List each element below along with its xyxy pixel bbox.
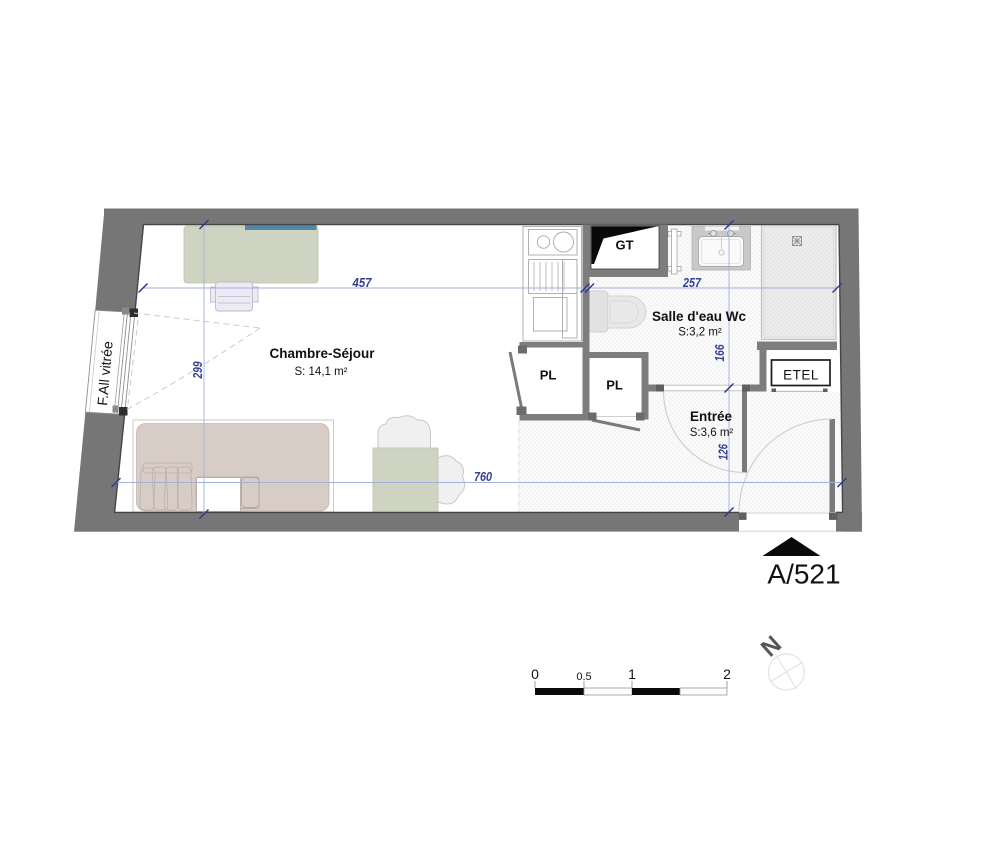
svg-text:S: 14,1 m²: S: 14,1 m² [294, 366, 347, 378]
svg-text:0.5: 0.5 [576, 671, 591, 683]
svg-text:S:3,2 m²: S:3,2 m² [678, 327, 722, 339]
svg-text:GT: GT [615, 238, 633, 253]
svg-text:PL: PL [606, 378, 623, 393]
svg-text:Entrée: Entrée [690, 409, 733, 424]
svg-text:ETEL: ETEL [783, 368, 819, 383]
svg-text:457: 457 [352, 275, 373, 290]
svg-text:2: 2 [723, 666, 731, 682]
svg-text:257: 257 [682, 275, 701, 290]
svg-text:S:3,6 m²: S:3,6 m² [690, 427, 734, 439]
svg-text:PL: PL [540, 368, 557, 383]
svg-text:299: 299 [190, 361, 205, 379]
svg-text:Salle d'eau Wc: Salle d'eau Wc [652, 309, 746, 324]
svg-text:Chambre-Séjour: Chambre-Séjour [269, 346, 375, 361]
svg-text:760: 760 [474, 469, 493, 484]
svg-text:166: 166 [712, 344, 727, 362]
svg-text:1: 1 [628, 666, 636, 682]
svg-text:A/521: A/521 [767, 559, 840, 590]
svg-text:126: 126 [716, 443, 731, 460]
svg-text:0: 0 [531, 666, 539, 682]
